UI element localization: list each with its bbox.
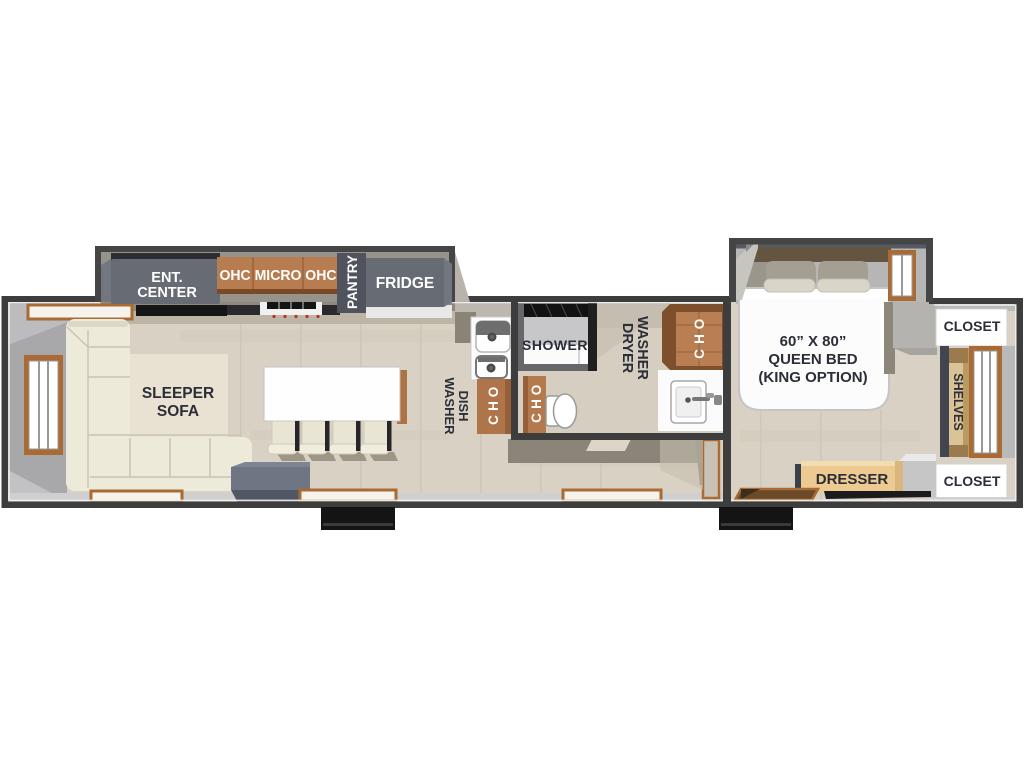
svg-text:60” X 80”: 60” X 80” bbox=[780, 333, 847, 350]
svg-text:DRYER: DRYER bbox=[619, 323, 635, 374]
svg-text:CLOSET: CLOSET bbox=[944, 318, 1001, 334]
svg-text:(KING OPTION): (KING OPTION) bbox=[758, 369, 867, 386]
svg-text:FRIDGE: FRIDGE bbox=[376, 275, 435, 292]
svg-text:C: C bbox=[692, 349, 707, 359]
svg-text:PANTRY: PANTRY bbox=[345, 255, 360, 309]
svg-text:CLOSET: CLOSET bbox=[944, 473, 1001, 489]
svg-text:SOFA: SOFA bbox=[157, 403, 199, 420]
svg-text:H: H bbox=[529, 399, 544, 409]
svg-text:O: O bbox=[692, 319, 707, 330]
svg-text:C: C bbox=[529, 413, 544, 423]
svg-text:CENTER: CENTER bbox=[137, 285, 197, 301]
svg-text:SLEEPER: SLEEPER bbox=[142, 385, 214, 402]
svg-text:O: O bbox=[529, 385, 544, 396]
svg-text:SHELVES: SHELVES bbox=[951, 373, 965, 430]
svg-text:WASHER: WASHER bbox=[442, 377, 457, 435]
svg-text:O: O bbox=[486, 387, 501, 398]
svg-text:DISH: DISH bbox=[456, 390, 471, 421]
svg-text:OHC MICRO OHC: OHC MICRO OHC bbox=[220, 267, 337, 284]
svg-text:SHOWER: SHOWER bbox=[522, 337, 588, 353]
svg-text:H: H bbox=[486, 401, 501, 411]
svg-text:DRESSER: DRESSER bbox=[816, 471, 889, 488]
svg-text:H: H bbox=[692, 334, 707, 344]
svg-text:QUEEN BED: QUEEN BED bbox=[768, 351, 857, 368]
svg-text:ENT.: ENT. bbox=[151, 270, 182, 286]
svg-text:WASHER: WASHER bbox=[634, 316, 650, 380]
svg-text:C: C bbox=[486, 415, 501, 425]
